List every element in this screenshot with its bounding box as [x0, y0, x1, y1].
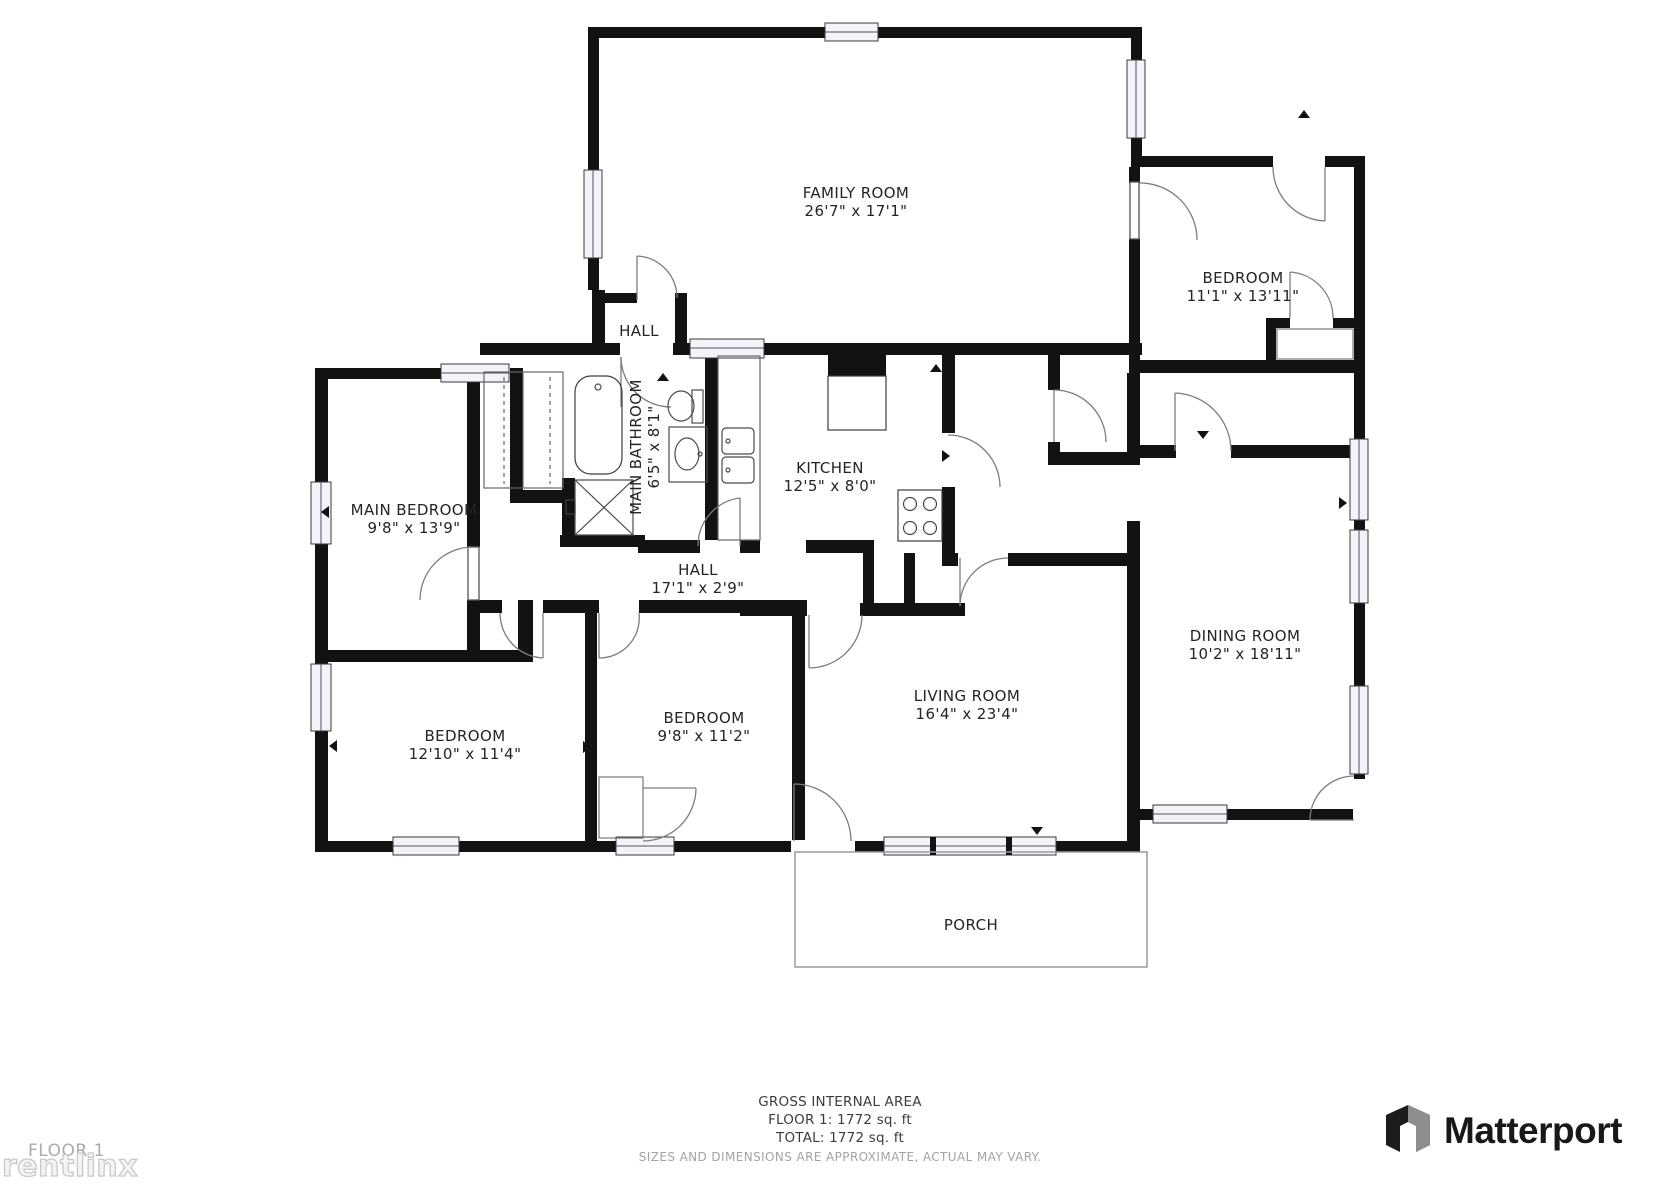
room-label-main-bedroom: MAIN BEDROOM 9'8" x 13'9" [351, 501, 478, 537]
porch-outline [795, 852, 1147, 967]
room-name: BEDROOM [658, 709, 751, 727]
room-name: LIVING ROOM [914, 687, 1020, 705]
room-name: DINING ROOM [1189, 627, 1302, 645]
room-name: KITCHEN [784, 459, 877, 477]
room-dims: 11'1" x 13'11" [1187, 287, 1300, 305]
room-dims: 10'2" x 18'11" [1189, 645, 1302, 663]
bathtub-icon [575, 376, 622, 474]
room-name: BEDROOM [409, 727, 522, 745]
fixtures-layer [484, 329, 1353, 838]
room-dims: 9'8" x 11'2" [658, 727, 751, 745]
room-name: MAIN BATHROOM [627, 379, 645, 515]
room-label-family-room: FAMILY ROOM 26'7" x 17'1" [803, 184, 910, 220]
floorplan-drawing [0, 0, 1680, 1188]
room-label-main-bathroom: MAIN BATHROOM 6'5" x 8'1" [627, 379, 663, 515]
room-label-hall: HALL 17'1" x 2'9" [652, 561, 745, 597]
room-label-bedroom-ne: BEDROOM 11'1" x 13'11" [1187, 269, 1300, 305]
room-label-living-room: LIVING ROOM 16'4" x 23'4" [914, 687, 1020, 723]
room-name: FAMILY ROOM [803, 184, 910, 202]
toilet-icon [668, 390, 703, 423]
room-label-dining-room: DINING ROOM 10'2" x 18'11" [1189, 627, 1302, 663]
matterport-logo: Matterport [1383, 1104, 1622, 1158]
room-label-bedroom-s: BEDROOM 9'8" x 11'2" [658, 709, 751, 745]
room-dims: 26'7" x 17'1" [803, 202, 910, 220]
sink-icon [669, 427, 707, 482]
fridge-icon [828, 352, 886, 430]
matterport-wordmark: Matterport [1444, 1110, 1622, 1152]
room-name: MAIN BEDROOM [351, 501, 478, 519]
rentlinx-watermark: rentlinx [2, 1149, 138, 1184]
room-label-bedroom-sw: BEDROOM 12'10" x 11'4" [409, 727, 522, 763]
room-label-kitchen: KITCHEN 12'5" x 8'0" [784, 459, 877, 495]
room-dims: 17'1" x 2'9" [652, 579, 745, 597]
closet-ne-box [1277, 329, 1353, 359]
room-dims: 12'5" x 8'0" [784, 477, 877, 495]
kitchen-sink-icon [722, 428, 754, 483]
room-name: HALL [652, 561, 745, 579]
room-name: HALL [619, 322, 659, 340]
matterport-icon [1383, 1104, 1433, 1158]
room-label-hall-upper: HALL [619, 322, 659, 340]
shower-icon [566, 480, 633, 535]
floorplan-canvas: FAMILY ROOM 26'7" x 17'1" BEDROOM 11'1" … [0, 0, 1680, 1188]
closet-main [484, 372, 563, 488]
room-name: BEDROOM [1187, 269, 1300, 287]
stove-icon [898, 490, 942, 541]
room-name: PORCH [944, 916, 998, 934]
closet-s-box [599, 777, 643, 838]
room-dims: 9'8" x 13'9" [351, 519, 478, 537]
room-dims: 12'10" x 11'4" [409, 745, 522, 763]
room-dims: 16'4" x 23'4" [914, 705, 1020, 723]
room-label-porch: PORCH [944, 916, 998, 934]
room-dims: 6'5" x 8'1" [645, 379, 663, 515]
